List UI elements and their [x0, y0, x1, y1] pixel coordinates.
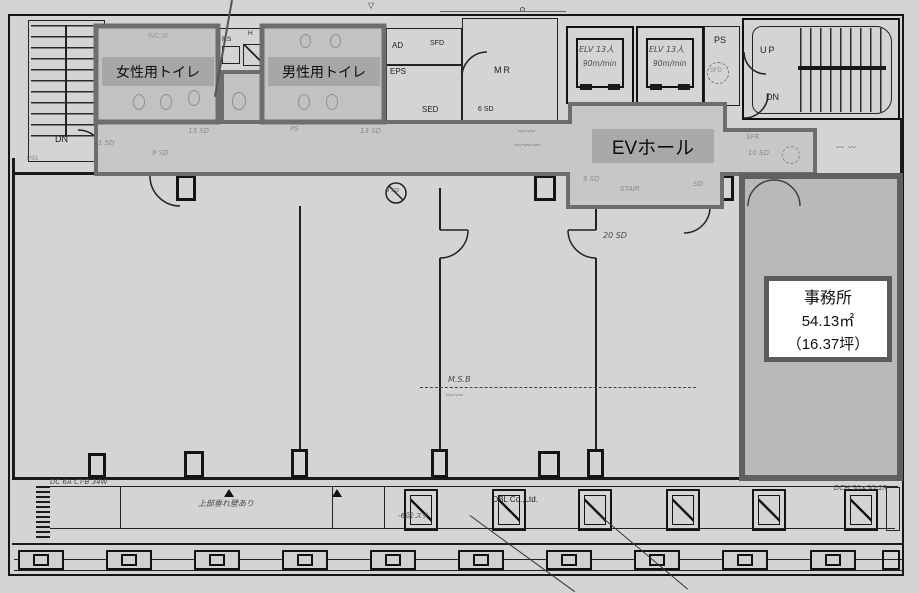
- office-centerline: [420, 387, 696, 388]
- toilet-fixture: [160, 94, 172, 110]
- corridor-mark: 13 SD: [360, 128, 381, 136]
- office-area-tsubo: （16.37坪）: [787, 333, 870, 354]
- womens-toilet-chip: 女性用トイレ: [102, 57, 214, 86]
- toilet-fixture: [232, 92, 246, 110]
- nabla-mark: ▽: [368, 2, 374, 11]
- ev-hall-chip: EVホール: [592, 129, 714, 163]
- corridor-mark: 9 SD: [583, 176, 600, 184]
- corridor-mark: 10 SD: [748, 150, 769, 158]
- corridor-mark: SD: [693, 181, 703, 189]
- obl-note: OBL Co.,Ltd.: [492, 496, 538, 505]
- dimension-line-top: [440, 11, 566, 12]
- scribble-mark: 〰〰〰: [514, 140, 541, 151]
- toilet-fixture: [326, 94, 338, 110]
- wcw-label: WC.W: [148, 33, 168, 41]
- floor-plan: DN PS1 F.S H AD SFD EPS SED MR 6 SD ELV …: [0, 0, 919, 593]
- dc-note: DC 6A CT-B 34W: [50, 479, 108, 487]
- urinal-fixture: [330, 34, 341, 48]
- msb-note: M.S.B: [448, 376, 471, 385]
- scribble-circle: [782, 146, 800, 164]
- toilet-fixture: [133, 94, 145, 110]
- dimension-dot: [520, 7, 525, 12]
- corridor-mark: SFR: [746, 134, 759, 142]
- office-area-m2: 54.13㎡: [802, 310, 855, 331]
- corridor-mark: STAIR: [620, 186, 640, 194]
- kai-note: -6回:スチ: [398, 513, 428, 521]
- womens-toilet-label: 女性用トイレ: [116, 62, 200, 82]
- mens-toilet-chip: 男性用トイレ: [268, 57, 380, 86]
- corridor-mark: 1 SD: [98, 140, 115, 148]
- toilet-fixture: [188, 90, 200, 106]
- scribble-mark: 〰〰: [446, 390, 464, 401]
- urinal-fixture: [300, 34, 311, 48]
- vent-note: 9 SD: [386, 188, 399, 194]
- dch-note: DCH 50×50-1R: [834, 485, 887, 493]
- toilet-fixture: [298, 94, 310, 110]
- corridor-mark: 9 SD: [152, 150, 169, 158]
- scribble-mark: 〰 〰: [836, 142, 857, 153]
- corridor-mark: PS: [290, 126, 299, 134]
- mens-toilet-label: 男性用トイレ: [282, 62, 366, 82]
- office-label-box: 事務所 54.13㎡ （16.37坪）: [764, 276, 892, 362]
- corridor-mark: 13 SD: [188, 128, 209, 136]
- office-name: 事務所: [804, 284, 852, 308]
- wall-note: 上部垂れ壁あり: [198, 500, 254, 509]
- scribble-mark: 〰〰: [518, 126, 536, 137]
- sd20-note: 20 SD: [603, 232, 627, 241]
- ev-hall-label: EVホール: [612, 133, 694, 160]
